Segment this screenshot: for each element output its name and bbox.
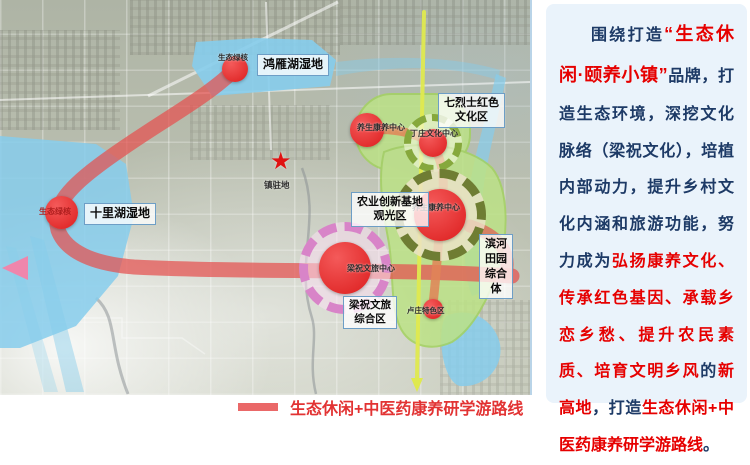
qilieshi-red-culture-label: 七烈士红色 文化区 [438,93,505,128]
hongyan-wetland-label: 鸿雁湖湿地 [257,54,329,76]
planning-map: 生态绿核 生态绿核 养生康养中心 丁庄文化中心 养生康养中心 梁祝文旅中心 卢庄… [0,0,532,395]
yellow-axis-arrow [411,378,423,392]
panel-text-segment: ，打造 [592,400,642,417]
panel-text-segment: 弘扬康养文化、传承红色基因、承载乡恋乡愁、提升农民素质、培育文明乡风 [559,253,734,380]
town-seat-label: 镇驻地 [264,179,290,191]
town-seat-star-icon: ★ [270,150,292,174]
route-legend-label: 生态休闲+中医药康养研学游路线 [290,395,523,419]
map-legend: 生态休闲+中医药康养研学游路线 [238,398,523,416]
panel-text-segment: 。 [703,437,719,454]
binhe-complex-label: 滨河 田园 综合 体 [479,234,513,299]
description-panel: 围绕打造“生态休闲·颐养小镇”品牌，打造生态环境，深挖文化脉络（梁祝文化），培植… [546,4,747,403]
panel-text-segment: 品牌，打造生态环境，深挖文化脉络（梁祝文化），培植内部动力，提升乡村文化内涵和旅… [559,68,734,270]
yangsheng-center-label: 养生康养中心 [357,122,405,133]
panel-text-segment: 的 [700,363,718,380]
luzhuang-label: 卢庄特色区 [407,305,445,316]
liangzhu-line2: 综合区 [349,313,391,327]
binhe-line2: 田园 [485,252,507,267]
nongye-line2: 观光区 [357,209,423,223]
qilieshi-line1: 七烈士红色 [444,96,499,110]
panel-text-segment: 围绕打造 [591,27,664,44]
binhe-line3: 综合 [485,267,507,282]
binhe-line1: 滨河 [485,237,507,252]
dingzhuang-center-label: 丁庄文化中心 [410,128,458,139]
eco-core-top-label: 生态绿核 [218,52,248,63]
binhe-line4: 体 [485,282,507,297]
liangzhu-zone-label: 梁祝文旅 综合区 [343,296,397,329]
panel-text: 围绕打造“生态休闲·颐养小镇”品牌，打造生态环境，深挖文化脉络（梁祝文化），培植… [559,14,734,465]
route-legend-swatch [238,403,278,411]
liangzhu-line1: 梁祝文旅 [349,299,391,313]
liangzhu-center-label: 梁祝文旅中心 [347,263,395,274]
eco-core-west-label: 生态绿核 [39,206,71,217]
nongye-line1: 农业创新基地 [357,195,423,209]
shilihu-wetland-label: 十里湖湿地 [84,203,156,225]
agri-innovation-label: 农业创新基地 观光区 [351,192,429,227]
qilieshi-line2: 文化区 [444,110,499,124]
